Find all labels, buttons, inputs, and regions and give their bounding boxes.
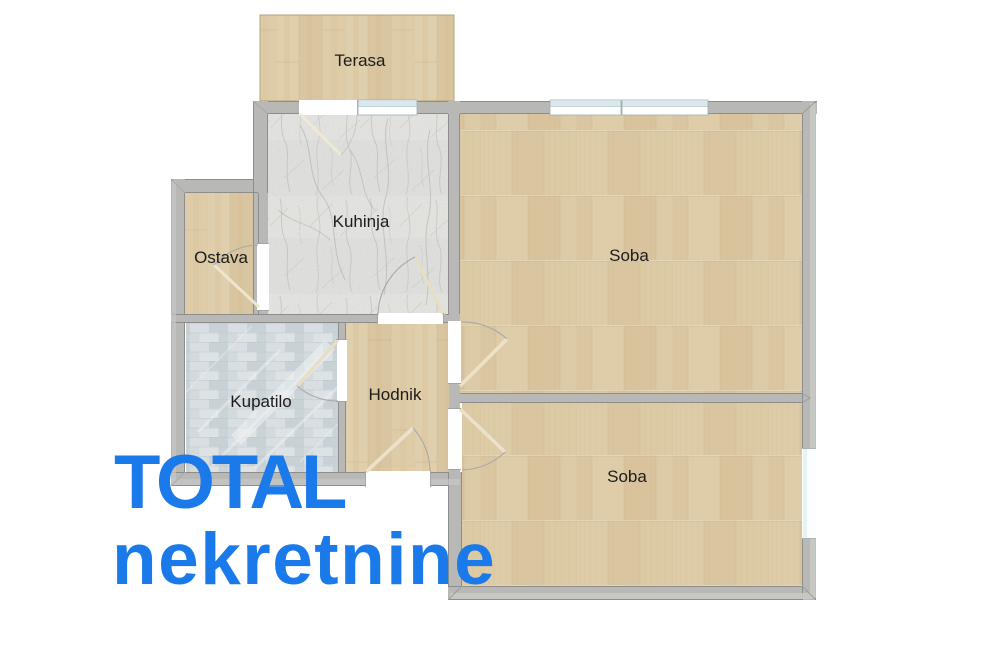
svg-text:Kuhinja: Kuhinja [333, 212, 390, 231]
svg-text:TOTAL: TOTAL [114, 440, 346, 525]
svg-text:Hodnik: Hodnik [369, 385, 422, 404]
svg-text:Soba: Soba [609, 246, 649, 265]
svg-text:Ostava: Ostava [194, 248, 248, 267]
svg-text:nekretnine: nekretnine [112, 519, 496, 600]
svg-text:Soba: Soba [607, 467, 647, 486]
svg-text:Terasa: Terasa [334, 51, 386, 70]
svg-text:Kupatilo: Kupatilo [230, 392, 291, 411]
